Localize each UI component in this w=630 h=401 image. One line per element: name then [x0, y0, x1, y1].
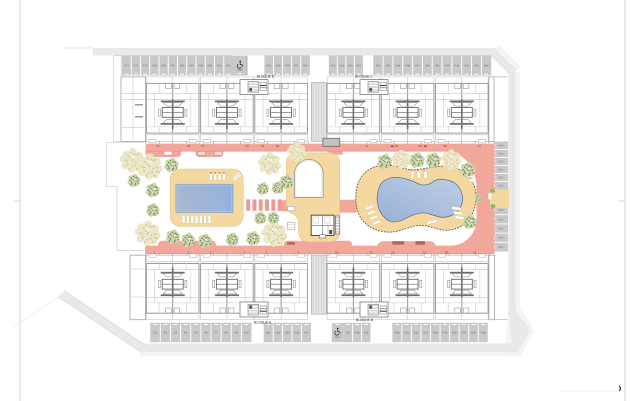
svg-text:P8: P8	[225, 332, 229, 335]
svg-text:P56: P56	[303, 65, 308, 68]
svg-text:23: 23	[369, 250, 373, 254]
svg-text:P25: P25	[443, 332, 448, 335]
svg-text:P58: P58	[285, 65, 290, 68]
svg-text:57: 57	[201, 144, 205, 148]
svg-text:P70: P70	[143, 65, 148, 68]
svg-text:19: 19	[473, 250, 477, 254]
svg-text:P29: P29	[481, 332, 486, 335]
svg-text:58: 58	[245, 144, 249, 148]
svg-text:38: 38	[443, 144, 447, 148]
svg-text:P68: P68	[161, 65, 166, 68]
svg-text:P14: P14	[294, 332, 299, 335]
svg-text:P71: P71	[134, 65, 139, 68]
svg-text:P46: P46	[425, 65, 430, 68]
svg-text:P33: P33	[499, 209, 504, 212]
svg-text:P5: P5	[194, 332, 198, 335]
svg-text:P37: P37	[499, 161, 504, 164]
svg-text:P66: P66	[180, 65, 185, 68]
svg-text:P51: P51	[376, 65, 381, 68]
svg-text:P24: P24	[433, 332, 438, 335]
svg-text:P12: P12	[276, 332, 281, 335]
svg-text:P29: P29	[499, 246, 504, 249]
svg-text:P42: P42	[464, 65, 469, 68]
svg-text:P44: P44	[445, 65, 450, 68]
svg-text:PMR: PMR	[238, 69, 243, 72]
svg-text:P36: P36	[499, 169, 504, 172]
svg-text:P11: P11	[266, 332, 271, 335]
svg-text:P32: P32	[499, 218, 504, 221]
svg-text:P43: P43	[454, 65, 459, 68]
svg-text:BLOQUE A: BLOQUE A	[254, 320, 272, 324]
svg-text:P64: P64	[198, 65, 203, 68]
svg-text:P20: P20	[395, 332, 400, 335]
svg-text:P62: P62	[217, 65, 222, 68]
svg-text:21: 21	[423, 250, 427, 254]
svg-text:56: 56	[187, 144, 191, 148]
svg-text:P23: P23	[423, 332, 428, 335]
svg-text:P35: P35	[499, 177, 504, 180]
svg-text:P59: P59	[276, 65, 281, 68]
svg-text:P2: P2	[164, 332, 168, 335]
svg-text:P49: P49	[396, 65, 401, 68]
svg-text:P22: P22	[414, 332, 419, 335]
svg-text:P48: P48	[405, 65, 410, 68]
svg-text:BLOQUE C: BLOQUE C	[355, 75, 373, 79]
svg-text:24: 24	[335, 250, 339, 254]
svg-text:P4: P4	[184, 332, 188, 335]
svg-text:P55: P55	[331, 65, 336, 68]
svg-text:P65: P65	[189, 65, 194, 68]
svg-text:BLOQUE D: BLOQUE D	[257, 75, 275, 79]
svg-text:41: 41	[365, 144, 369, 148]
svg-text:P1: P1	[154, 332, 158, 335]
svg-text:P47: P47	[415, 65, 420, 68]
svg-text:22: 22	[391, 250, 395, 254]
svg-text:P63: P63	[208, 65, 213, 68]
svg-text:40: 40	[395, 144, 399, 148]
svg-text:P28: P28	[471, 332, 476, 335]
svg-text:P39: P39	[499, 145, 504, 148]
svg-text:P50: P50	[386, 65, 391, 68]
svg-text:P3: P3	[174, 332, 178, 335]
svg-text:P61: P61	[226, 65, 231, 68]
svg-text:P52: P52	[356, 65, 361, 68]
svg-text:P19: P19	[364, 332, 369, 335]
svg-text:P13: P13	[285, 332, 290, 335]
svg-text:P72: P72	[124, 65, 129, 68]
svg-text:P60: P60	[267, 65, 272, 68]
svg-text:P38: P38	[499, 153, 504, 156]
svg-text:P45: P45	[435, 65, 440, 68]
svg-text:P6: P6	[204, 332, 208, 335]
svg-text:P18: P18	[355, 332, 360, 335]
svg-text:20: 20	[445, 250, 449, 254]
svg-text:55: 55	[156, 144, 160, 148]
svg-text:P40: P40	[484, 65, 489, 68]
svg-text:39: 39	[418, 144, 422, 148]
svg-text:P53: P53	[348, 65, 353, 68]
svg-text:P67: P67	[171, 65, 176, 68]
svg-text:P31: P31	[499, 228, 504, 231]
svg-text:P17: P17	[346, 332, 351, 335]
svg-text:P57: P57	[294, 65, 299, 68]
svg-text:P34: P34	[499, 185, 504, 188]
svg-text:P69: P69	[152, 65, 157, 68]
svg-text:60: 60	[276, 144, 280, 148]
svg-text:59: 59	[261, 144, 265, 148]
svg-text:37: 37	[478, 144, 482, 148]
svg-text:P54: P54	[339, 65, 344, 68]
svg-text:P15: P15	[304, 332, 309, 335]
svg-text:BLOQUE B: BLOQUE B	[356, 318, 374, 322]
svg-text:P26: P26	[452, 332, 457, 335]
svg-text:P30: P30	[499, 237, 504, 240]
svg-text:P10: P10	[244, 332, 249, 335]
svg-text:P9: P9	[235, 332, 239, 335]
svg-text:P21: P21	[404, 332, 409, 335]
svg-text:P41: P41	[474, 65, 479, 68]
svg-text:P7: P7	[214, 332, 218, 335]
svg-text:P27: P27	[462, 332, 467, 335]
